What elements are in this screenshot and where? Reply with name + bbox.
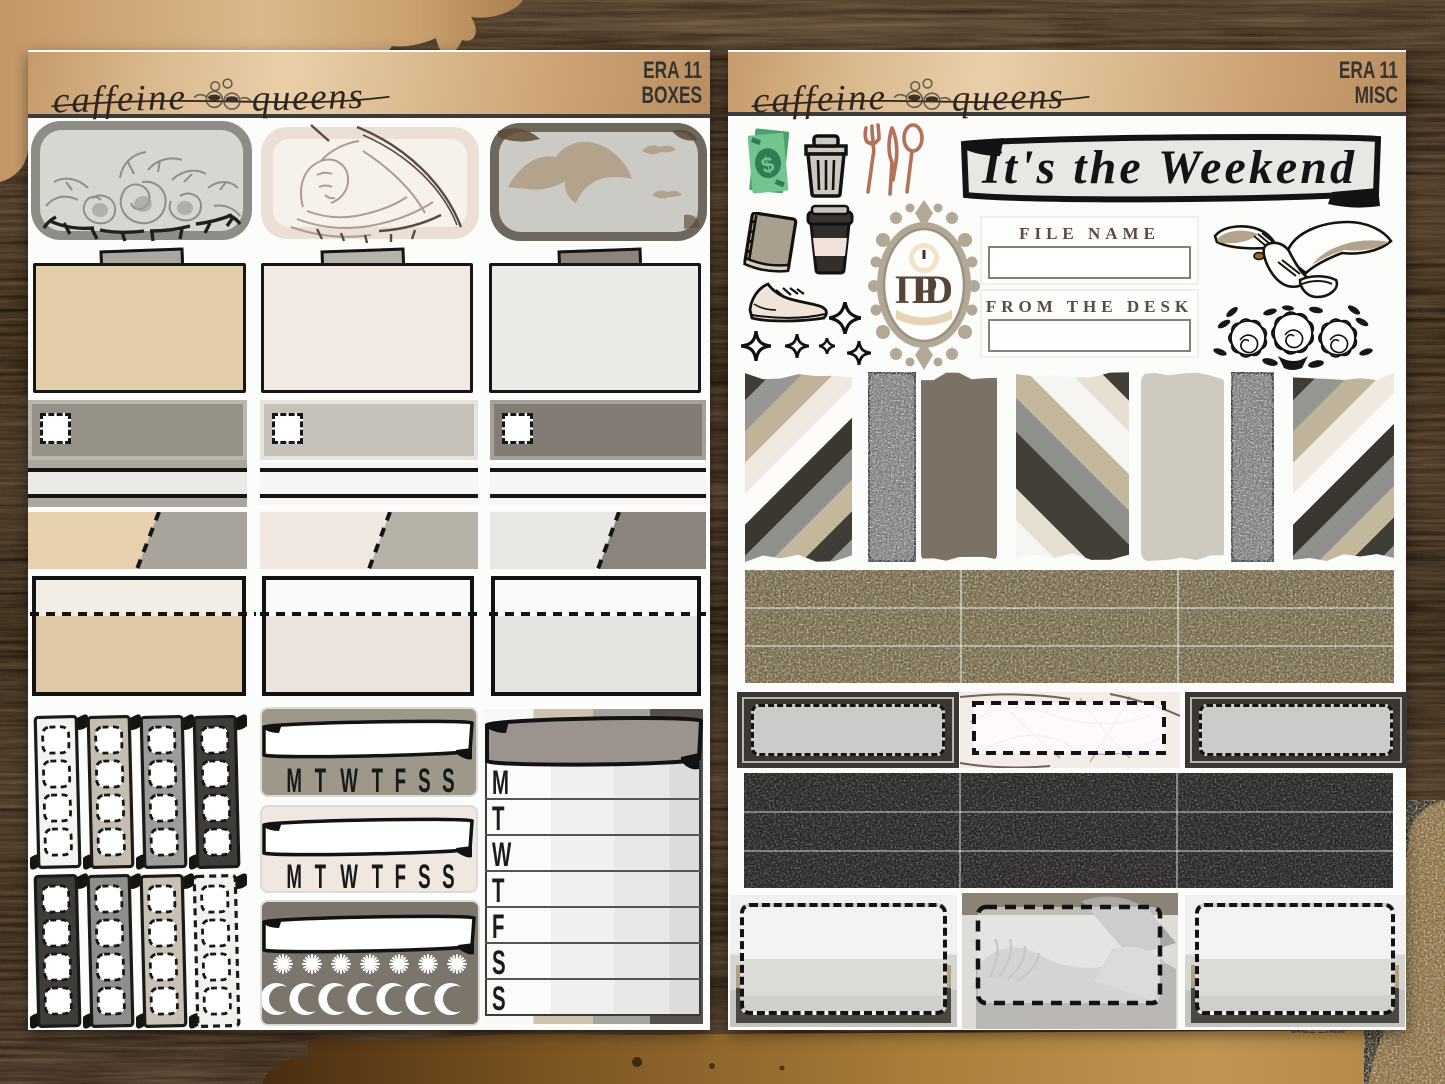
- svg-text:caffeine: caffeine: [752, 76, 885, 120]
- svg-text:queens: queens: [251, 76, 363, 119]
- svg-text:caffeine: caffeine: [52, 76, 185, 120]
- svg-text:ΠPD: ΠPD: [895, 267, 953, 312]
- svg-text:queens: queens: [951, 76, 1063, 119]
